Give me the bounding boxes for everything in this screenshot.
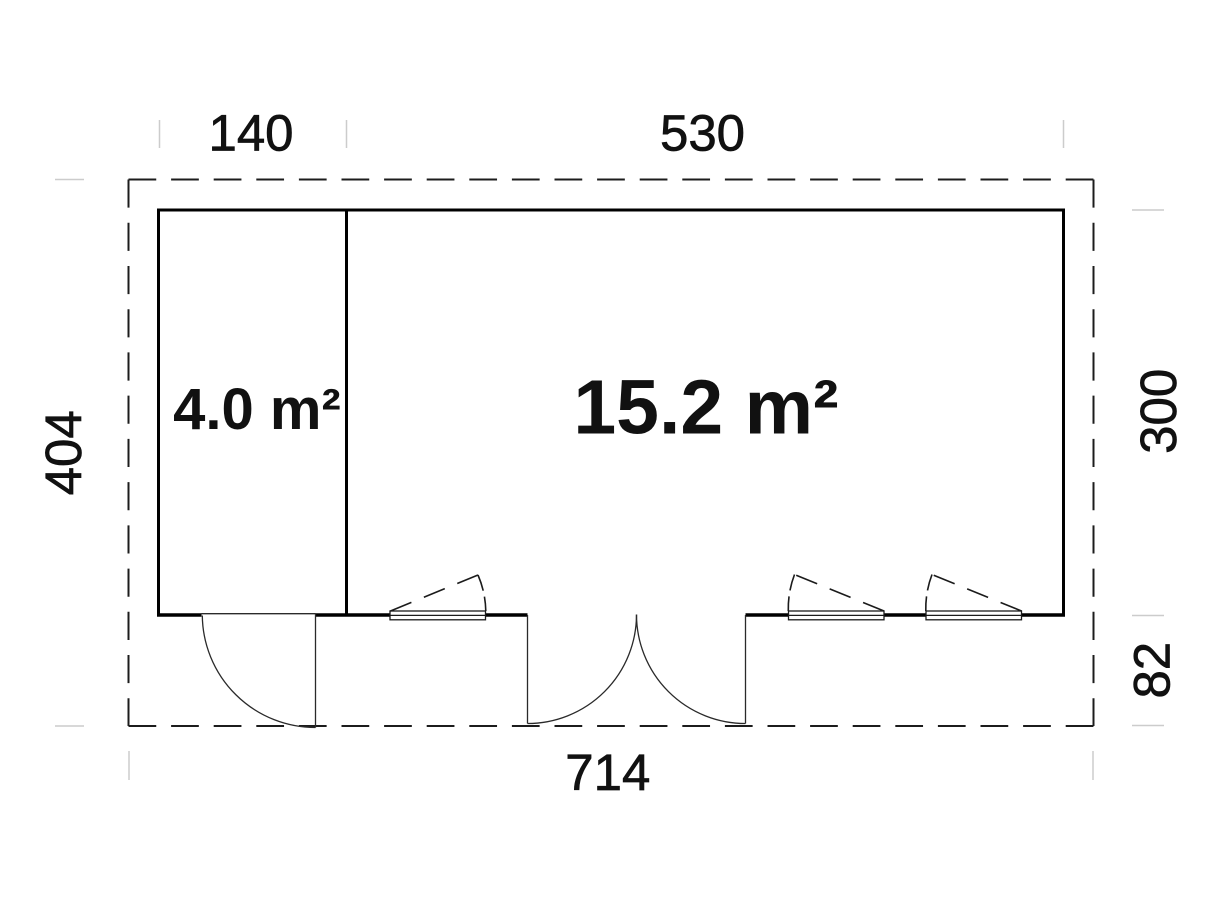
svg-text:15.2 m²: 15.2 m²: [573, 365, 838, 451]
svg-text:530: 530: [660, 105, 745, 162]
svg-text:82: 82: [1124, 642, 1181, 699]
svg-text:300: 300: [1130, 369, 1187, 454]
svg-text:4.0 m²: 4.0 m²: [173, 377, 341, 442]
svg-text:714: 714: [565, 744, 650, 801]
svg-text:404: 404: [35, 410, 92, 495]
svg-text:140: 140: [208, 105, 293, 162]
